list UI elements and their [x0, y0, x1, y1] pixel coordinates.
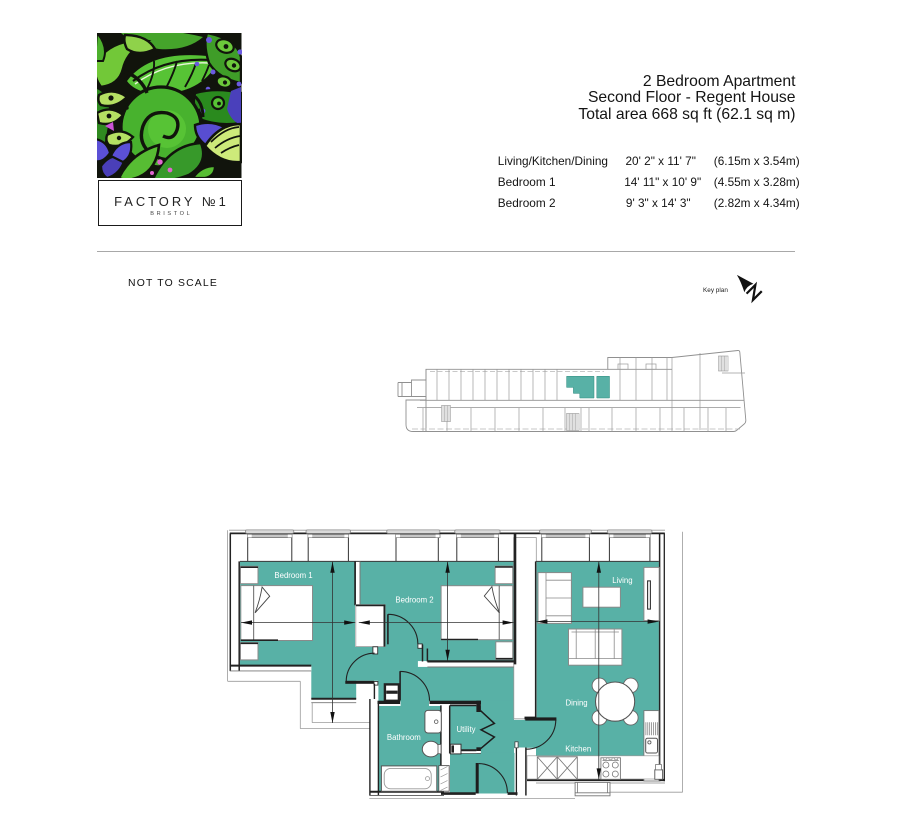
svg-text:Utility: Utility [456, 725, 475, 734]
svg-text:Dining: Dining [566, 699, 588, 708]
svg-text:Bedroom 2: Bedroom 2 [395, 595, 433, 604]
svg-text:Bedroom 1: Bedroom 1 [274, 571, 312, 580]
svg-text:Bathroom: Bathroom [387, 733, 421, 742]
svg-text:Living: Living [612, 576, 632, 585]
svg-text:Kitchen: Kitchen [565, 744, 591, 753]
